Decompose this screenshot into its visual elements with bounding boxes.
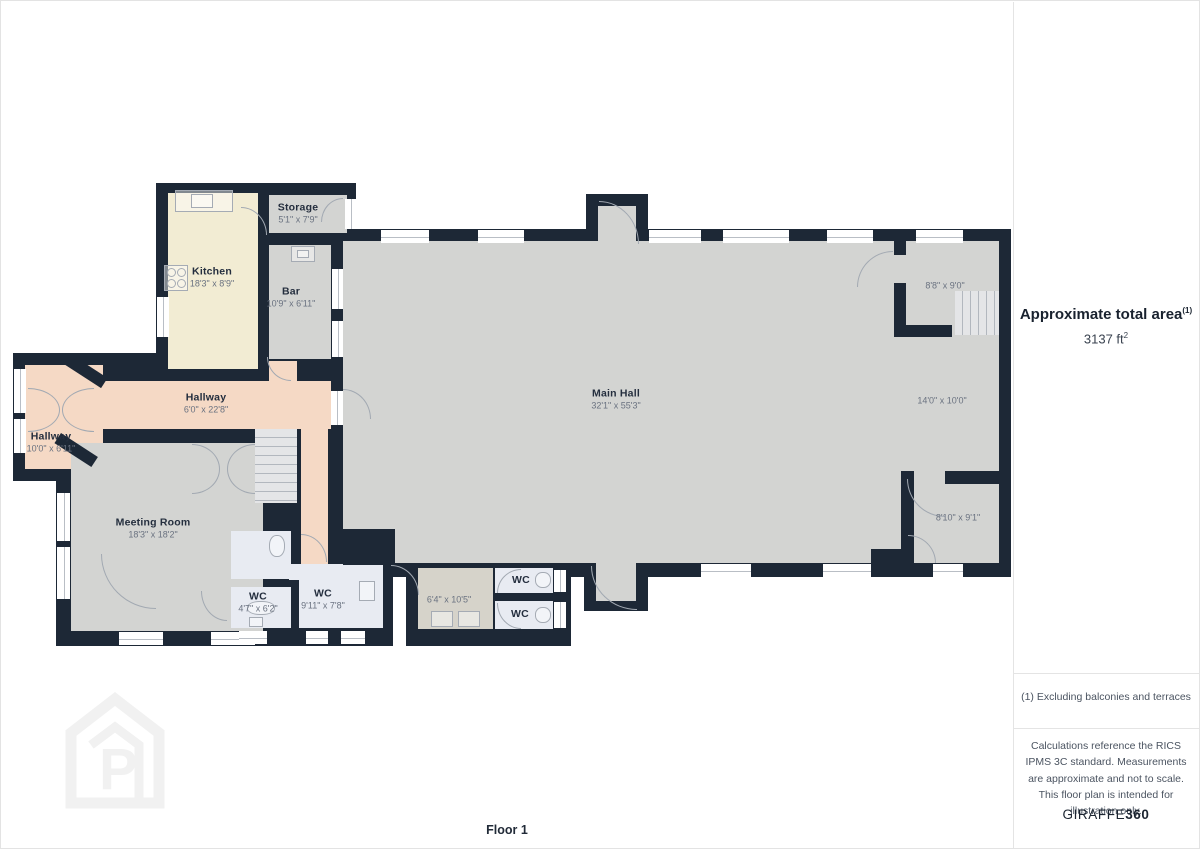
room-dims: 6'0" x 22'8" — [184, 405, 228, 415]
window — [331, 391, 343, 425]
room-name: Meeting Room — [116, 517, 191, 529]
window — [916, 230, 963, 243]
lobby-fixture — [431, 611, 453, 627]
sidebar-section-divider — [1014, 728, 1200, 729]
sidebar-section-divider — [1014, 673, 1200, 674]
wall — [343, 529, 395, 565]
window — [701, 564, 751, 577]
room-dims: 18'3" x 18'2" — [116, 530, 191, 540]
room-label-kitchen: Kitchen 18'3" x 8'9" — [190, 266, 234, 289]
svg-text:P: P — [99, 737, 138, 802]
stove-burner — [167, 279, 176, 288]
bar-sink-basin — [297, 250, 309, 258]
room-name: WC — [301, 588, 345, 600]
room-name: WC — [512, 574, 530, 586]
kitchen-sink-basin — [191, 194, 213, 208]
room-label-lobby: 6'4" x 10'5" — [427, 594, 471, 605]
wc-basin — [249, 617, 263, 627]
watermark-house-logo: P — [61, 687, 169, 809]
window — [332, 269, 343, 309]
window — [823, 564, 871, 577]
wall — [894, 241, 906, 255]
room-name: Storage — [278, 202, 319, 214]
window — [157, 297, 169, 337]
window — [723, 230, 789, 243]
staircase — [255, 429, 297, 503]
room-name: WC — [238, 591, 277, 603]
total-area-title-superscript: (1) — [1182, 306, 1192, 315]
room-label-wc-north: WC — [512, 574, 530, 586]
window — [119, 632, 163, 645]
wall — [894, 325, 952, 337]
room-dims: 14'0" x 10'0" — [917, 396, 966, 406]
room-label-wc-south: WC — [511, 608, 529, 620]
window — [306, 631, 328, 644]
window — [239, 631, 267, 644]
room-dims: 5'1" x 7'9" — [278, 215, 319, 225]
room-dims: 8'8" x 9'0" — [925, 281, 964, 291]
window — [933, 564, 963, 577]
window — [381, 230, 429, 243]
room-dims: 18'3" x 8'9" — [190, 279, 234, 289]
wall — [945, 471, 999, 484]
total-area-value-text: 3137 ft — [1084, 331, 1124, 346]
brand-logo: GIRAFFE360 — [1013, 807, 1199, 822]
window — [14, 419, 26, 453]
toilet — [535, 572, 551, 588]
window — [478, 230, 524, 243]
room-name: Kitchen — [190, 266, 234, 278]
room-label-mid-right: 14'0" x 10'0" — [917, 395, 966, 406]
room-dims: 10'0" x 6'11" — [27, 444, 76, 454]
floorplan-page: Kitchen 18'3" x 8'9" Storage 5'1" x 7'9"… — [0, 0, 1200, 849]
wall — [871, 549, 908, 565]
room-label-main-hall: Main Hall 32'1" x 55'3" — [591, 388, 640, 411]
window — [341, 631, 365, 644]
room-dims: 8'10" x 9'1" — [936, 513, 980, 523]
room-label-storage: Storage 5'1" x 7'9" — [278, 202, 319, 225]
staircase — [955, 291, 999, 335]
window — [827, 230, 873, 243]
total-area-title: Approximate total area(1) — [1013, 306, 1199, 323]
brand-regular: GIRAFFE — [1062, 807, 1125, 822]
room-label-hallway-left: Hallway 10'0" x 6'11" — [27, 431, 76, 454]
room-label-wc-large: WC 9'11" x 7'8" — [301, 588, 345, 611]
room-dims: 10'9" x 6'11" — [267, 299, 316, 309]
sidebar-divider — [1013, 2, 1014, 849]
toilet — [269, 535, 285, 557]
lobby-fixture — [458, 611, 480, 627]
window — [554, 570, 566, 592]
room-label-hallway-main: Hallway 6'0" x 22'8" — [184, 392, 228, 415]
room-name: Bar — [267, 286, 316, 298]
stove-burner — [177, 279, 186, 288]
toilet — [535, 607, 551, 623]
footnote-exclusions: (1) Excluding balconies and terraces — [1021, 689, 1191, 705]
stove — [164, 265, 188, 291]
room-label-wc-small: WC 4'7" x 6'2" — [238, 591, 277, 614]
window — [332, 321, 343, 357]
total-area-title-text: Approximate total area — [1020, 306, 1183, 323]
window — [554, 602, 566, 628]
window — [14, 369, 26, 413]
wc-sink — [359, 581, 375, 601]
window — [57, 547, 70, 599]
window — [649, 230, 701, 243]
room-dims: 9'11" x 7'8" — [301, 601, 345, 611]
stove-burner — [177, 268, 186, 277]
brand-bold: 360 — [1125, 807, 1149, 822]
window — [345, 199, 357, 229]
total-area-value-superscript: 2 — [1124, 331, 1128, 340]
room-name: Hallway — [27, 431, 76, 443]
stove-burner — [167, 268, 176, 277]
total-area-value: 3137 ft2 — [1013, 331, 1199, 346]
room-dims: 6'4" x 10'5" — [427, 595, 471, 605]
room-label-meeting: Meeting Room 18'3" x 18'2" — [116, 517, 191, 540]
room-label-bar: Bar 10'9" x 6'11" — [267, 286, 316, 309]
window — [57, 493, 70, 541]
room-label-top-right: 8'8" x 9'0" — [925, 280, 964, 291]
room-dims: 32'1" x 55'3" — [591, 401, 640, 411]
room-name: Hallway — [184, 392, 228, 404]
floor-label: Floor 1 — [407, 823, 607, 837]
room-name: Main Hall — [591, 388, 640, 400]
room-label-bottom-right: 8'10" x 9'1" — [936, 512, 980, 523]
total-area-block: Approximate total area(1) 3137 ft2 — [1013, 306, 1199, 346]
room-dims: 4'7" x 6'2" — [238, 604, 277, 614]
room-name: WC — [511, 608, 529, 620]
